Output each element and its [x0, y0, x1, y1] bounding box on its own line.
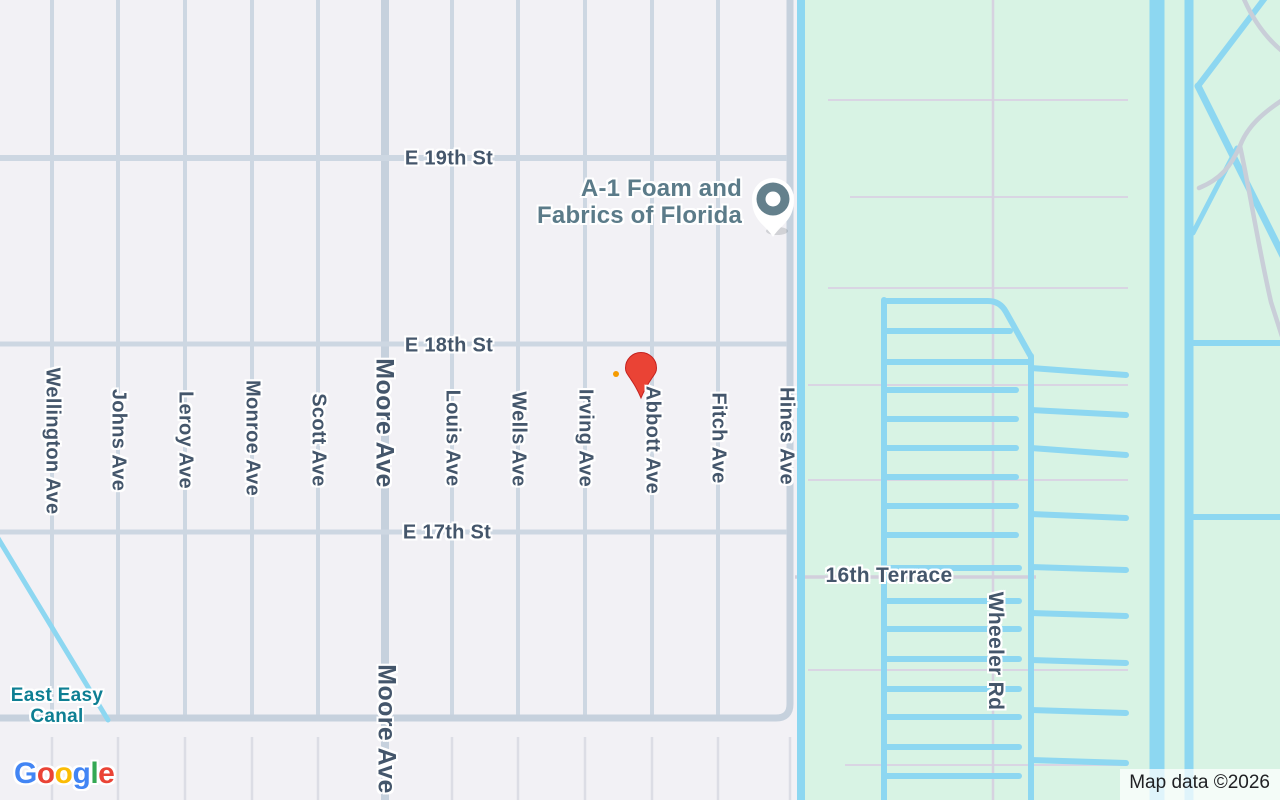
avenue-label-scott: Scott Ave [307, 393, 330, 486]
avenue-label-abbott: Abbott Ave [641, 386, 664, 494]
avenue-label-wellington: Wellington Ave [41, 368, 64, 515]
green-area [803, 0, 1280, 800]
google-logo[interactable]: Google [14, 757, 114, 791]
avenue-label-leroy: Leroy Ave [174, 391, 197, 489]
logo-letter: o [37, 757, 55, 790]
small-poi-dot[interactable] [613, 371, 619, 377]
water-label-east-easy-canal: East Easy Canal [11, 685, 104, 727]
avenue-label-monroe: Monroe Ave [241, 380, 264, 496]
street-label-e-18th: E 18th St [405, 335, 493, 358]
street-label-e-17th: E 17th St [403, 522, 491, 545]
avenue-label-wells: Wells Ave [507, 391, 530, 486]
street-label-e-19th: E 19th St [405, 148, 493, 171]
avenue-label-johns: Johns Ave [107, 389, 130, 491]
poi-label-a1-foam[interactable]: A-1 Foam and Fabrics of Florida [537, 175, 742, 229]
logo-letter: G [14, 757, 37, 790]
map-canvas[interactable]: E 19th St E 18th St E 17th St Wellington… [0, 0, 1280, 800]
map-attribution: Map data ©2026 [1120, 769, 1280, 800]
road-label-16th-terrace: 16th Terrace [826, 564, 953, 588]
avenue-label-louis: Louis Ave [441, 390, 464, 487]
road-label-wheeler: Wheeler Rd [983, 592, 1007, 711]
avenue-label-irving: Irving Ave [574, 389, 597, 487]
logo-letter: g [73, 757, 91, 790]
avenue-label-hines: Hines Ave [775, 387, 798, 485]
avenue-label-fitch: Fitch Ave [707, 392, 730, 483]
logo-letter: l [90, 757, 98, 790]
logo-letter: o [55, 757, 73, 790]
logo-letter: e [98, 757, 114, 790]
avenue-label-moore-bottom: Moore Ave [372, 664, 401, 794]
avenue-label-moore-top: Moore Ave [370, 358, 399, 488]
